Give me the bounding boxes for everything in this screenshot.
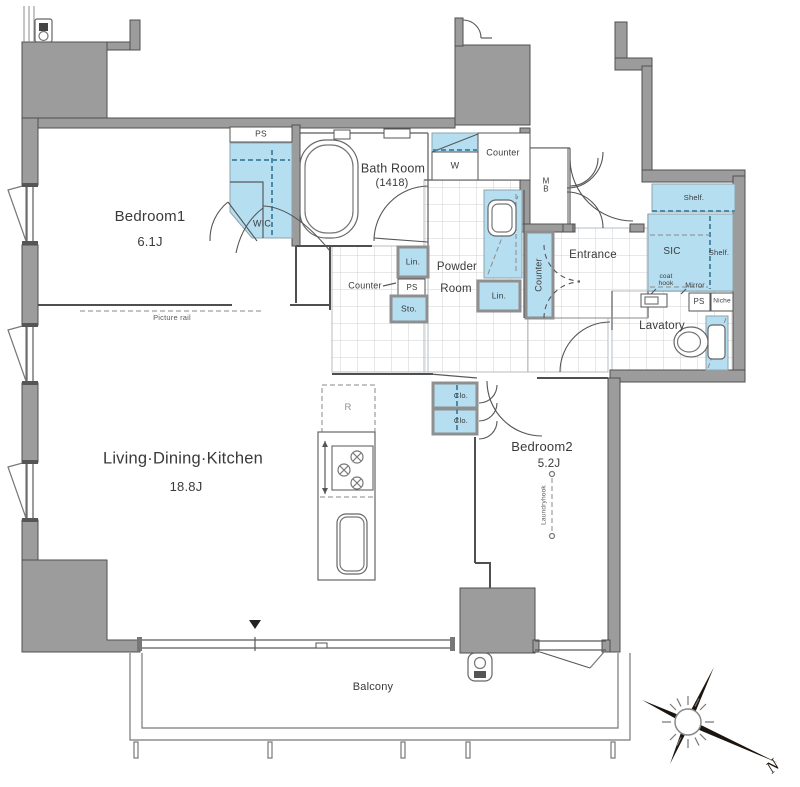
ldk-label: Living·Dining·Kitchen [103, 450, 263, 467]
coat-hook-line2: hook [659, 281, 674, 288]
linen-2-label: Lin. [492, 292, 507, 301]
bedroom2-size: 5.2J [538, 458, 561, 470]
mb-label: M B [543, 178, 550, 195]
wic-label: WIC [253, 219, 271, 228]
ps-lavatory-label: PS [693, 298, 704, 306]
lavatory-label: Lavatory [639, 320, 685, 332]
top-hatching [24, 6, 492, 42]
linen-1-label: Lin. [406, 258, 421, 267]
ps-mid-label: PS [406, 284, 417, 292]
sic-label: SIC [663, 247, 680, 258]
compass-n-label: N [761, 754, 784, 777]
entrance-counter-label: Counter [534, 258, 543, 291]
counter-top-label: Counter [486, 148, 519, 157]
shelf-top-label: Shelf. [684, 194, 704, 202]
bedroom1-size: 6.1J [137, 235, 162, 249]
meter-box-icon [35, 19, 52, 42]
drain-icon [468, 653, 492, 681]
bedroom2-window [535, 641, 606, 668]
bedroom1-window [8, 183, 38, 245]
compass: N [642, 667, 784, 778]
mirror-label: Mirror [685, 282, 704, 289]
floor-plan-drawing: N [0, 0, 800, 787]
ldk-size: 18.8J [170, 480, 203, 494]
coat-hook-label: coat hook [659, 274, 674, 288]
ps-top-label: PS [255, 130, 267, 139]
picture-rail-label: Picture rail [153, 314, 191, 322]
laundry-hook-label: Laundryhook [542, 485, 549, 525]
storage-label: Sto. [401, 305, 417, 314]
ldk-sliding-window [137, 620, 455, 651]
closet-1-label: Clo. [454, 392, 468, 400]
balcony-label: Balcony [353, 682, 394, 694]
powder-room-label-1: Powder [437, 261, 477, 273]
niche-label: Niche [713, 299, 731, 306]
closet-2-label: Clo. [454, 417, 468, 425]
floor-plan: N Bedroom1 6.1J WIC PS Bath Room (1418) … [0, 0, 800, 787]
kitchen [318, 385, 375, 580]
bedroom1-label: Bedroom1 [115, 209, 186, 225]
powder-room-label-2: Room [440, 283, 471, 295]
washer-label: W [451, 161, 460, 170]
ldk-window-2 [8, 460, 38, 522]
balcony-structure [130, 653, 630, 758]
shelf-right-label: Shelf. [709, 249, 729, 257]
ldk-window-1 [8, 323, 38, 385]
refrigerator-label: R [344, 403, 351, 413]
bedroom2-label: Bedroom2 [511, 440, 573, 454]
mb-line2: B [543, 186, 550, 194]
bathroom-label: Bath Room [361, 162, 425, 175]
bathroom-size: (1418) [376, 178, 409, 190]
entrance-label: Entrance [569, 249, 617, 261]
washbasin [484, 190, 522, 278]
counter-mid-label: Counter [348, 281, 381, 290]
